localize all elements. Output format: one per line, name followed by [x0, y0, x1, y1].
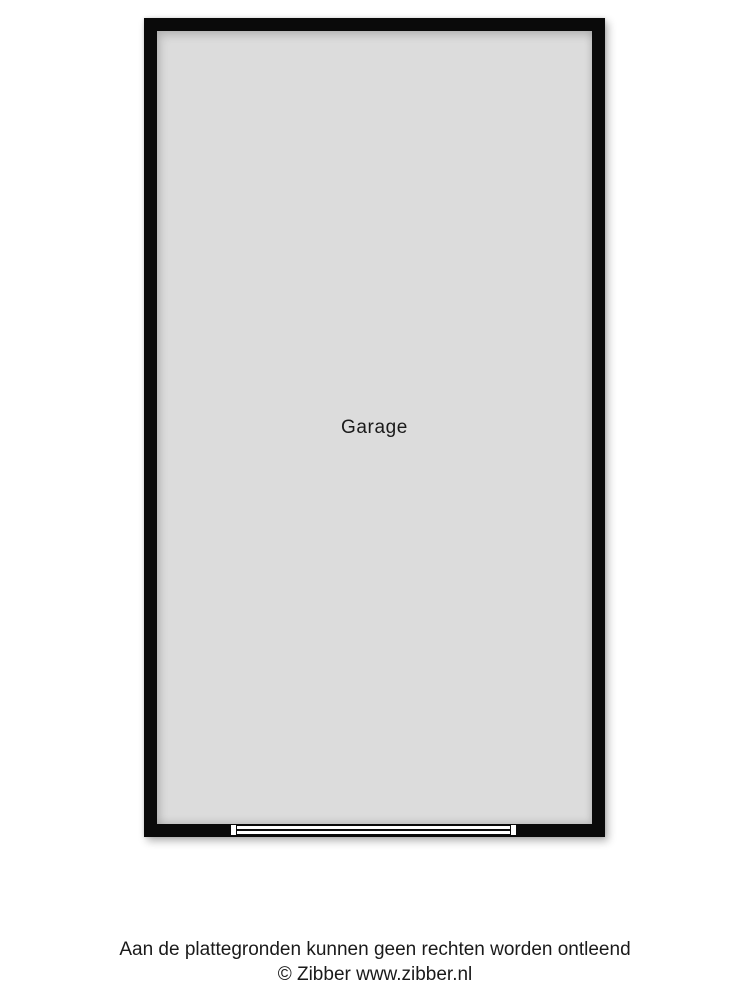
door-panel	[237, 824, 510, 836]
room-label-garage: Garage	[341, 417, 408, 439]
floorplan-page: Garage Aan de plattegronden kunnen geen …	[0, 0, 750, 1000]
copyright-text: © Zibber www.zibber.nl	[0, 962, 750, 987]
garage-room: Garage	[157, 31, 592, 824]
floorplan: Garage	[144, 18, 605, 837]
door-jamb-right	[510, 824, 517, 836]
footer: Aan de plattegronden kunnen geen rechten…	[0, 937, 750, 987]
garage-door	[230, 824, 517, 836]
door-jamb-left	[230, 824, 237, 836]
door-panel-line	[237, 829, 510, 831]
disclaimer-text: Aan de plattegronden kunnen geen rechten…	[0, 937, 750, 962]
